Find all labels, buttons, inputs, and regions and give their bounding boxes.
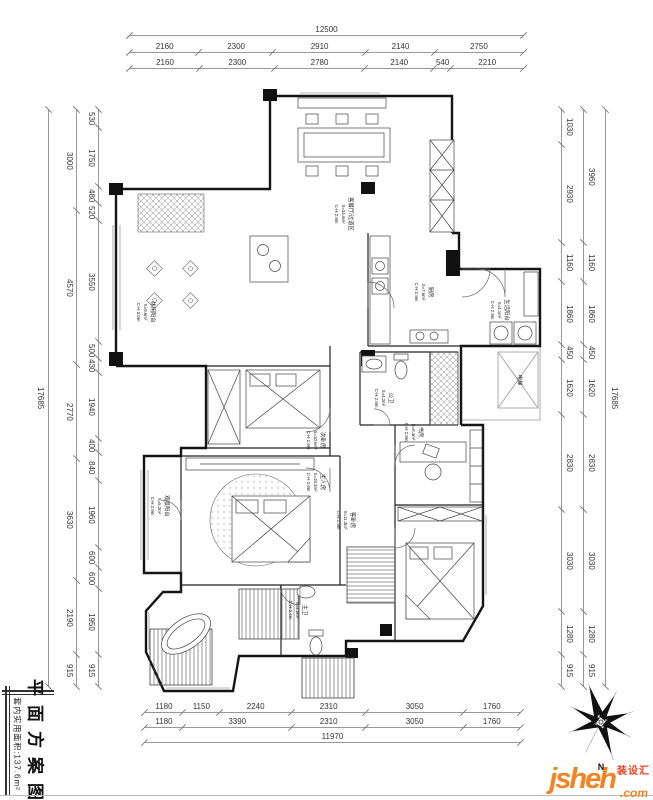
svg-text:S=5.2m²: S=5.2m² bbox=[157, 498, 162, 515]
svg-text:客卧房: 客卧房 bbox=[349, 512, 357, 528]
svg-text:书房: 书房 bbox=[417, 427, 425, 438]
title-block-rule bbox=[9, 686, 10, 796]
wardrobe-guest bbox=[398, 507, 482, 521]
svg-text:S=8.4m²: S=8.4m² bbox=[411, 424, 416, 441]
svg-text:公卫: 公卫 bbox=[387, 393, 394, 404]
room-label: 客卧房 S=11.3m² C-H 2.9m bbox=[336, 511, 357, 530]
door-entry bbox=[462, 269, 490, 297]
svg-text:客餐厅/过道区: 客餐厅/过道区 bbox=[347, 197, 355, 231]
room-label: 次卧房 S=10.6m² C-H 2.9m bbox=[306, 430, 327, 450]
svg-text:S=4.2m²: S=4.2m² bbox=[381, 390, 386, 407]
svg-text:C-H 3.0m: C-H 3.0m bbox=[136, 303, 141, 322]
floor-plan-sheet: 12500 2160 2300 2910 2140 2750 2160 2300… bbox=[0, 0, 653, 800]
svg-text:C-H 2.9m: C-H 2.9m bbox=[490, 301, 495, 320]
public-bath-fixtures bbox=[362, 354, 408, 379]
dining-table bbox=[298, 114, 390, 176]
furniture bbox=[154, 98, 538, 662]
compass: N bbox=[556, 673, 645, 772]
svg-text:C-H 2.9m: C-H 2.9m bbox=[306, 431, 311, 450]
column bbox=[361, 182, 375, 194]
bed-guest bbox=[406, 543, 474, 619]
stair-run bbox=[347, 547, 395, 603]
room-label: 厨房 S=7.6m² C-H 2.9m bbox=[414, 283, 435, 302]
room-label: 观景阳台 S=5.2m² C-H 2.9m bbox=[150, 495, 171, 517]
column bbox=[109, 183, 123, 195]
wardrobe bbox=[208, 370, 240, 444]
room-label: 主卫 S=4.6m² C-H 2.4m bbox=[288, 601, 309, 620]
column bbox=[109, 352, 123, 366]
site-logo: jsheh 装设汇 .com bbox=[549, 765, 650, 799]
svg-text:C-H 2.9m: C-H 2.9m bbox=[150, 497, 155, 516]
compass-star bbox=[556, 673, 645, 770]
svg-text:C-H 2.9m: C-H 2.9m bbox=[334, 205, 339, 224]
exterior-walls bbox=[116, 96, 540, 691]
door-public-bath bbox=[374, 409, 390, 425]
svg-text:观景阳台: 观景阳台 bbox=[163, 495, 171, 517]
bed-master bbox=[232, 496, 310, 562]
stair-run bbox=[302, 658, 354, 698]
svg-text:S=4.1m²: S=4.1m² bbox=[497, 302, 502, 319]
kitchen-counter bbox=[370, 236, 448, 344]
desk bbox=[400, 430, 482, 502]
sheet-area-note: 套内实用面积:137.6m² bbox=[12, 697, 23, 791]
column bbox=[346, 648, 358, 658]
svg-text:C-H 2.9m: C-H 2.9m bbox=[336, 511, 341, 530]
column bbox=[263, 89, 277, 101]
svg-text:生活阳台: 生活阳台 bbox=[503, 299, 511, 321]
tile-rug bbox=[138, 194, 204, 232]
svg-text:C-H 2.9m: C-H 2.9m bbox=[404, 423, 409, 442]
column bbox=[380, 624, 392, 636]
service-shaft-hatch bbox=[430, 352, 458, 425]
sideboard bbox=[298, 98, 386, 108]
logo-brand-text: jsheh bbox=[549, 765, 615, 794]
tall-cabinets bbox=[430, 140, 454, 232]
svg-text:S=4.6m²: S=4.6m² bbox=[295, 602, 300, 619]
svg-text:S=11.3m²: S=11.3m² bbox=[343, 511, 348, 530]
room-label: 休闲阳台 S=9.6m² C-H 3.0m bbox=[136, 301, 157, 323]
room-label: 主人房 S=18.2m² C-H 2.9m bbox=[306, 472, 327, 492]
svg-text:S=10.6m²: S=10.6m² bbox=[313, 430, 318, 450]
svg-text:厨房: 厨房 bbox=[427, 287, 435, 298]
logo-suffix-text: .com bbox=[620, 787, 648, 799]
column bbox=[446, 250, 460, 276]
room-label: 生活阳台 S=4.1m² C-H 2.9m bbox=[490, 299, 511, 321]
title-block-rule bbox=[5, 686, 7, 796]
svg-text:S=7.6m²: S=7.6m² bbox=[421, 284, 426, 301]
svg-text:S=9.6m²: S=9.6m² bbox=[143, 304, 148, 321]
sheet-title: 平面方案图 bbox=[25, 679, 50, 800]
room-label: 客餐厅/过道区 S=34.6m² C-H 2.9m bbox=[334, 197, 355, 231]
svg-text:S=34.6m²: S=34.6m² bbox=[341, 204, 346, 224]
room-label: 公卫 S=4.2m² C-H 2.9m bbox=[374, 389, 394, 408]
island-table bbox=[250, 236, 288, 282]
svg-text:C-H 2.9m: C-H 2.9m bbox=[374, 389, 379, 408]
svg-text:C-H 2.4m: C-H 2.4m bbox=[288, 601, 293, 620]
lobby-outline bbox=[461, 346, 540, 420]
logo-tag-text: 装设汇 bbox=[617, 767, 650, 777]
svg-text:电梯: 电梯 bbox=[516, 375, 524, 386]
svg-text:C-H 2.9m: C-H 2.9m bbox=[306, 473, 311, 492]
door-service bbox=[477, 269, 505, 297]
svg-text:主人房: 主人房 bbox=[319, 474, 327, 490]
svg-text:C-H 2.9m: C-H 2.9m bbox=[414, 283, 419, 302]
svg-text:次卧房: 次卧房 bbox=[319, 432, 327, 448]
bed-secondary bbox=[246, 370, 320, 428]
floor-plan-drawing: 客餐厅/过道区 S=34.6m² C-H 2.9m 厨房 S=7.6m² C-H… bbox=[0, 0, 653, 800]
room-label: 电梯 bbox=[516, 375, 524, 386]
svg-text:休闲阳台: 休闲阳台 bbox=[149, 301, 157, 323]
svg-text:主卫: 主卫 bbox=[301, 605, 309, 616]
svg-text:S=18.2m²: S=18.2m² bbox=[313, 472, 318, 492]
common-area bbox=[461, 346, 540, 420]
